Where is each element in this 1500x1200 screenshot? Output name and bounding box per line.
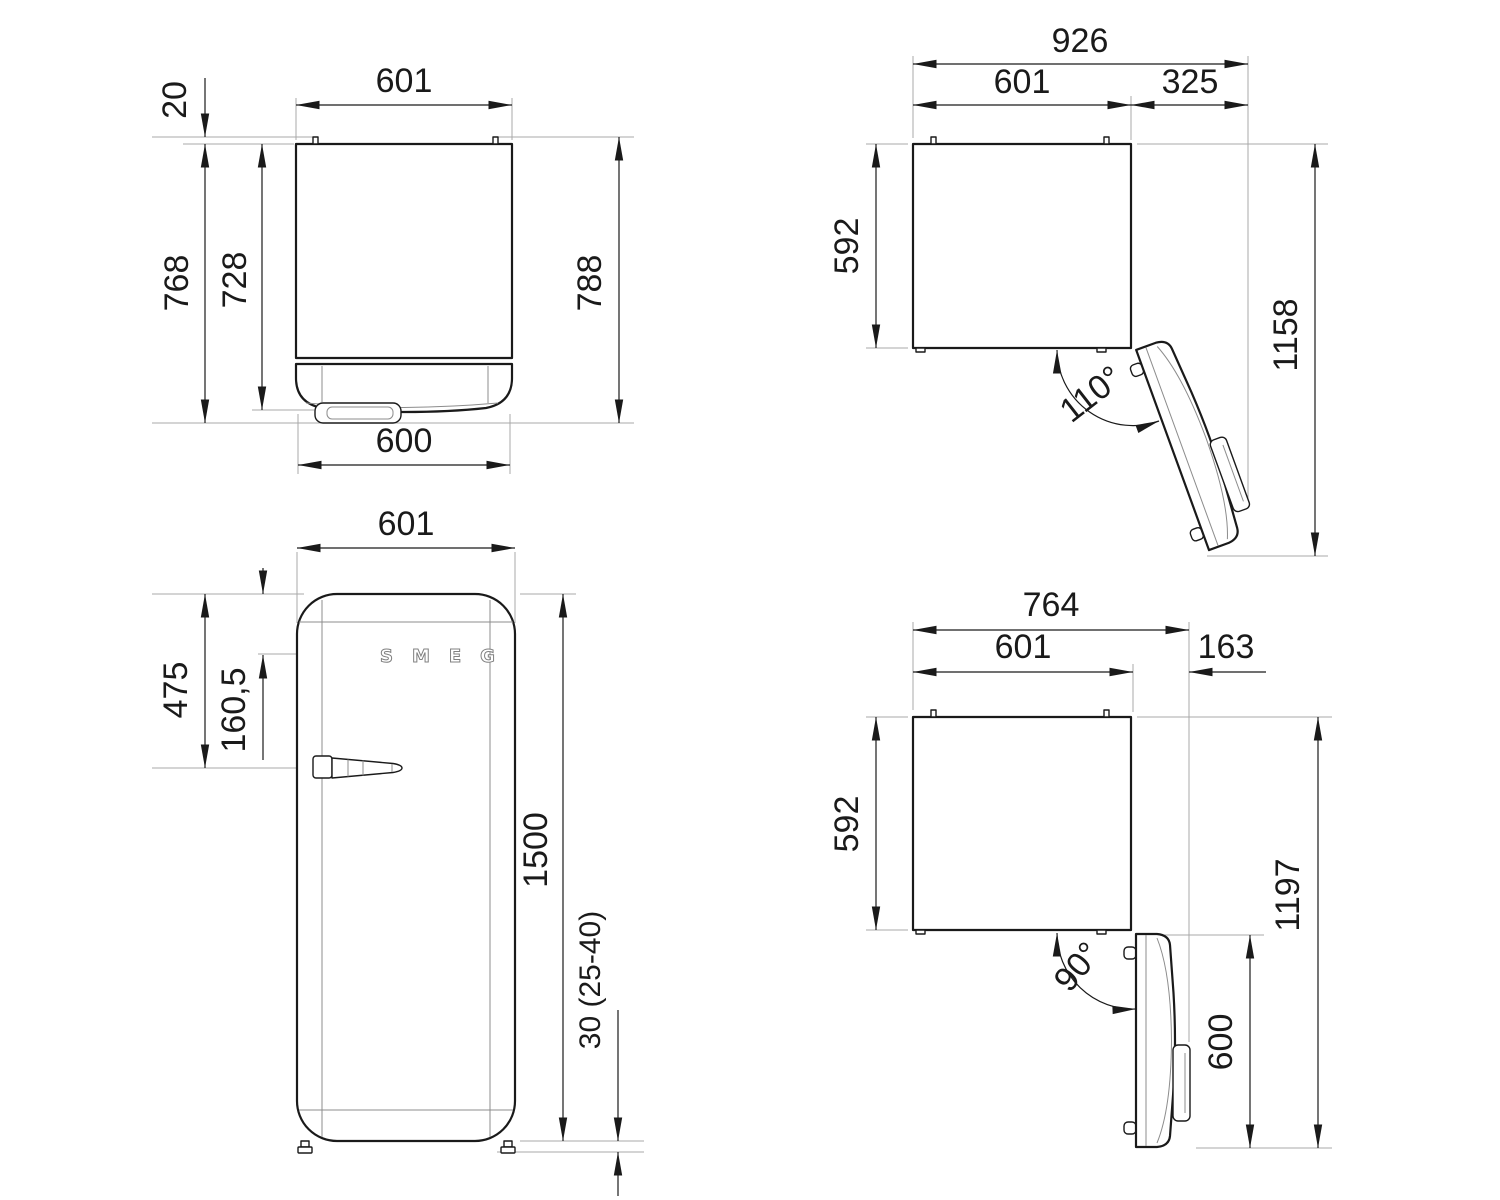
dim-label-door-angle: 90° <box>1046 935 1108 999</box>
dim-label-logo-offset: 160,5 <box>215 667 253 752</box>
refrigerator-dimension-drawing: 601 20 768 728 788 600 <box>0 0 1500 1200</box>
dim-label-overall-width: 764 <box>1023 586 1080 624</box>
dim-label-width-top: 601 <box>376 62 433 100</box>
dim-label-body-depth: 592 <box>828 796 866 853</box>
door-plan-closed <box>296 364 512 423</box>
hinge-pin <box>931 710 936 717</box>
hinge-pin <box>1104 710 1109 717</box>
dimension-drawing-page: 601 20 768 728 788 600 <box>0 0 1500 1200</box>
door-open-90 <box>1124 934 1190 1147</box>
front-foot-mark <box>916 930 925 934</box>
front-foot-mark <box>1097 930 1106 934</box>
cabinet-body-plan <box>913 710 1131 934</box>
dim-label-depth-overall: 788 <box>571 255 609 312</box>
front-foot-mark <box>1097 348 1106 352</box>
hinge-pin <box>493 137 498 144</box>
hinge-tab <box>1124 947 1136 959</box>
dim-label-body-depth: 592 <box>828 218 866 275</box>
door-front <box>297 594 515 1141</box>
hinge-tab <box>1124 1122 1136 1134</box>
cabinet-body-plan <box>296 137 512 358</box>
dim-label-depth-body: 728 <box>216 252 254 309</box>
dim-label-door-width: 600 <box>376 422 433 460</box>
dim-label-door-depth-open: 600 <box>1202 1014 1240 1071</box>
dim-label-body-width: 601 <box>995 628 1052 666</box>
cabinet-body-plan <box>913 137 1131 352</box>
front-view: SMEG 601 475 16 <box>152 505 644 1196</box>
fridge-front: SMEG <box>297 594 515 1153</box>
hinge-pin <box>931 137 936 144</box>
adjustable-feet <box>298 1141 515 1153</box>
door-handle-plan <box>315 403 401 423</box>
top-view-door-open-90: 764 601 163 592 1197 600 90° <box>828 586 1332 1148</box>
dim-label-overall-depth: 1158 <box>1267 298 1305 371</box>
dim-label-body-width: 601 <box>994 63 1051 101</box>
hinge-pin <box>1104 137 1109 144</box>
dim-label-handle-offset: 475 <box>157 662 195 719</box>
dim-label-width: 601 <box>378 505 435 543</box>
hinge-pin <box>313 137 318 144</box>
dim-label-depth-with-handle: 768 <box>158 255 196 312</box>
top-view-door-closed: 601 20 768 728 788 600 <box>152 62 634 474</box>
dim-label-door-swing: 325 <box>1162 63 1219 101</box>
dim-label-door-angle: 110° <box>1053 358 1130 430</box>
dim-label-pin-gap: 20 <box>156 81 194 119</box>
door-open-110 <box>1125 331 1260 554</box>
dim-label-door-swing: 163 <box>1198 628 1255 666</box>
door-handle <box>1173 1045 1190 1121</box>
dim-label-plinth-clearance: 30 (25-40) <box>574 911 607 1049</box>
brand-logo: SMEG <box>380 646 514 667</box>
dim-label-height: 1500 <box>517 812 555 888</box>
top-view-door-open-110: 926 601 325 592 1158 110° <box>828 22 1328 556</box>
dim-label-overall-width: 926 <box>1052 22 1109 60</box>
dim-label-overall-depth: 1197 <box>1269 858 1307 931</box>
front-foot-mark <box>916 348 925 352</box>
